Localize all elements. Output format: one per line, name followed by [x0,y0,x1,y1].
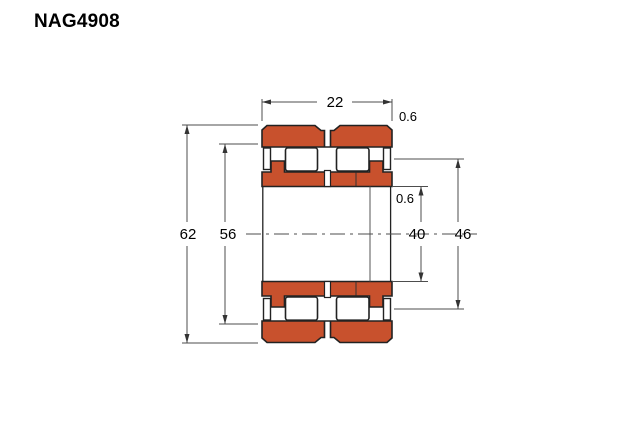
bearing-cross-section-drawing: 22 0.6 62 56 40 0.6 [0,0,640,440]
dim-arrow-down [185,334,190,343]
dim-arrow-down [456,300,461,309]
dim-raceway-diameter-label: 56 [220,226,237,243]
inner-ring-oil-hole [325,171,331,187]
dim-arrow-left [262,100,271,105]
roller-left [286,148,318,171]
dim-bore-chamfer-label: 0.6 [396,191,414,206]
dim-arrow-up [223,144,228,153]
dim-arrow-down [223,315,228,324]
side-washer-right [384,148,391,170]
dim-arrow-up [185,125,190,134]
roller-right [337,148,370,171]
dim-rib-diameter-label: 46 [455,226,472,243]
dim-arrow-up [456,159,461,168]
outer-ring [262,126,392,148]
side-washer-left [264,148,271,170]
dim-arrow-up [419,187,424,196]
dim-width-label: 22 [327,94,344,111]
dim-outer-diameter-label: 62 [180,226,197,243]
dim-arrow-right [383,100,392,105]
bearing-top-half [262,126,392,187]
dim-bore-diameter-label: 40 [409,226,426,243]
dim-arrow-down [419,273,424,282]
bearing-bottom-half [262,282,392,343]
dim-outer-chamfer-label: 0.6 [399,109,417,124]
